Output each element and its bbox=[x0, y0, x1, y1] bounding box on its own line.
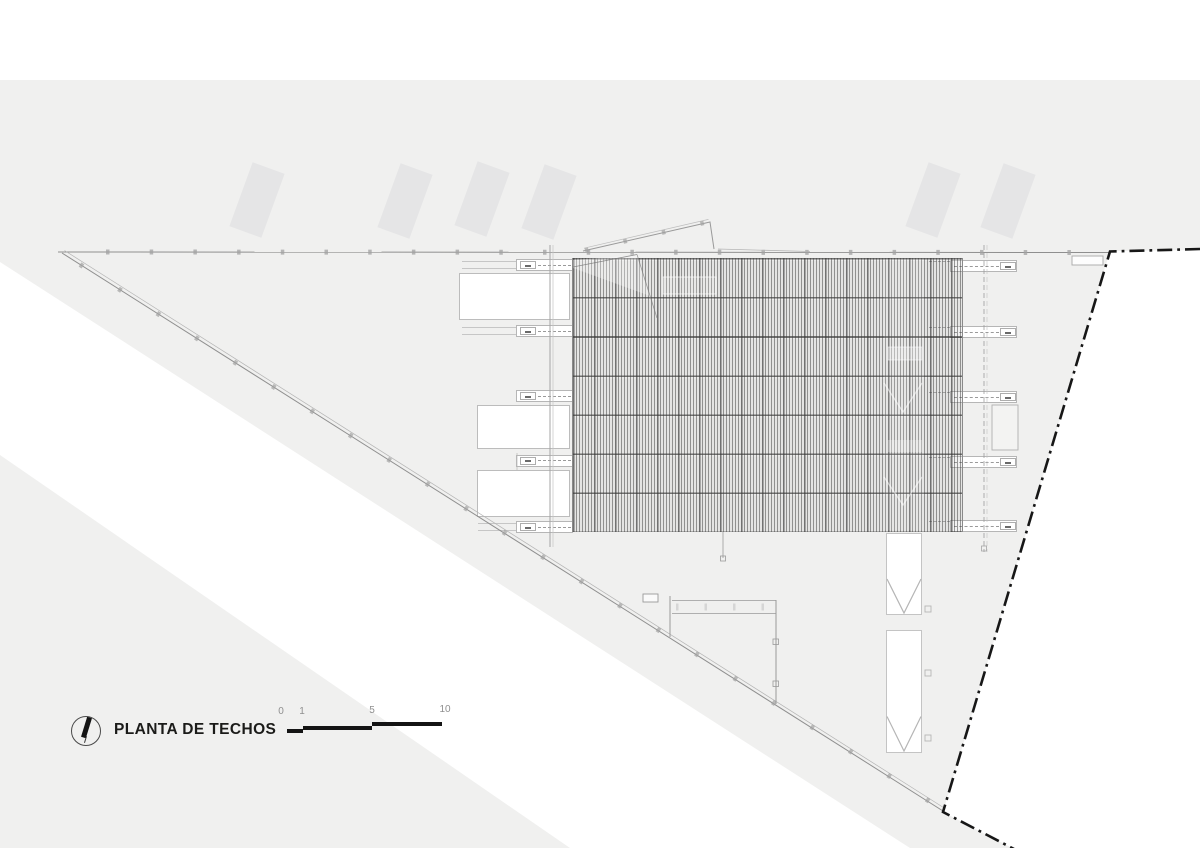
scale-bar-segment bbox=[372, 722, 442, 726]
scale-label-0: 0 bbox=[273, 706, 289, 717]
scale-bar-segment bbox=[287, 729, 303, 733]
title-block: PLANTA DE TECHOS 0 1 5 10 bbox=[0, 0, 1200, 848]
drawing-title: PLANTA DE TECHOS bbox=[114, 721, 276, 739]
scale-label-1: 1 bbox=[294, 706, 310, 717]
scale-label-10: 10 bbox=[437, 704, 453, 715]
roof-plan-canvas: PLANTA DE TECHOS 0 1 5 10 bbox=[0, 0, 1200, 848]
scale-bar-segment bbox=[303, 726, 372, 730]
scale-label-5: 5 bbox=[364, 705, 380, 716]
